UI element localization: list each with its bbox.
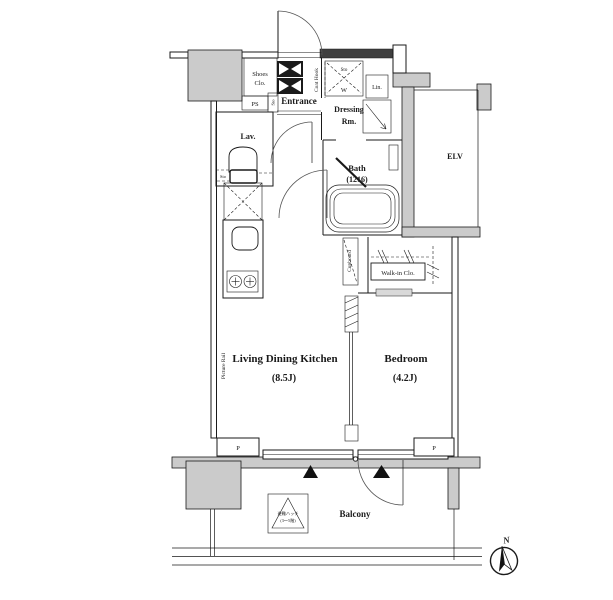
label-sto-entrance: Sto — [271, 99, 276, 106]
floorplan-drawing: Entrance Shoes Clo. PS Sto Coat Hook Dre… — [0, 0, 613, 600]
label-ps: PS — [251, 101, 259, 108]
bath-counter — [389, 145, 398, 170]
toilet-icon — [229, 147, 272, 183]
label-coat-hook: Coat Hook — [314, 68, 320, 92]
ldk-window — [263, 450, 353, 459]
label-bedroom-size: (4.2J) — [393, 373, 417, 384]
wall-top-left-stub — [170, 52, 188, 58]
label-bath-2: (1216) — [346, 175, 368, 184]
kitchen-area — [223, 183, 263, 298]
label-ldk-size: (8.5J) — [272, 373, 296, 384]
bathtub-icon — [326, 185, 399, 232]
window-lock — [353, 457, 357, 461]
label-hatch-2: (3〜5階) — [280, 517, 296, 524]
pillar-top-left — [188, 50, 242, 101]
refrigerator-space-icon — [224, 183, 262, 220]
label-sto-washer: Sto — [341, 68, 348, 73]
label-picture-rail: Picture Rail — [221, 352, 227, 379]
label-ldk-name: Living Dining Kitchen — [232, 353, 337, 365]
wic-opening-threshold — [376, 289, 412, 296]
hall-door — [271, 122, 312, 163]
wall-elv-left — [402, 87, 414, 237]
entrance-door — [278, 11, 322, 55]
label-bedroom-name: Bedroom — [384, 353, 427, 365]
wall-bedroom-right — [452, 237, 458, 458]
pillar-bottom-left — [186, 461, 241, 509]
label-balcony: Balcony — [339, 509, 371, 519]
compass-icon — [489, 544, 520, 576]
label-walk-in-closet: Walk-in Clo. — [381, 270, 415, 277]
sink-icon — [232, 227, 258, 250]
wall-stub-topright — [477, 84, 491, 110]
label-bath-1: Bath — [348, 163, 366, 173]
label-linen: Lin. — [372, 85, 382, 91]
wall-elv-top — [393, 73, 430, 87]
label-shoes-closet-2: Clo. — [254, 80, 265, 87]
wall-top-mid — [242, 52, 278, 58]
wall-balcony-divider — [448, 468, 459, 509]
label-cupboard: Cupboard — [347, 250, 353, 272]
partitions — [216, 58, 478, 441]
label-lavatory: Lav. — [241, 132, 256, 141]
label-entrance: Entrance — [281, 96, 317, 106]
dresser-icon — [363, 100, 391, 133]
label-washer: W — [341, 87, 348, 94]
label-dressing-1: Dressing — [334, 105, 364, 114]
sliding-partition — [345, 296, 358, 441]
label-pipe-left: P — [236, 445, 240, 452]
label-sto-lavatory: Sto — [220, 174, 227, 179]
label-hatch-1: 避難ハッチ — [278, 510, 299, 517]
ldk-door — [279, 170, 327, 218]
label-shoes-closet-1: Shoes — [252, 71, 268, 78]
label-elevator: ELV — [447, 152, 463, 161]
label-compass-north: N — [501, 534, 511, 545]
storage-area — [343, 238, 439, 286]
stove-icon — [227, 271, 258, 292]
wall-wic-top — [402, 227, 480, 237]
labels: Entrance Shoes Clo. PS Sto Coat Hook Dre… — [220, 68, 511, 546]
floorplan-page: Entrance Shoes Clo. PS Sto Coat Hook Dre… — [0, 0, 613, 600]
shoe-cabinet-icon — [277, 61, 303, 94]
dressing-room-area — [325, 61, 391, 133]
label-pipe-right: P — [432, 445, 436, 452]
label-dressing-2: Rm. — [342, 117, 356, 126]
wall-jog-topright — [393, 45, 406, 73]
